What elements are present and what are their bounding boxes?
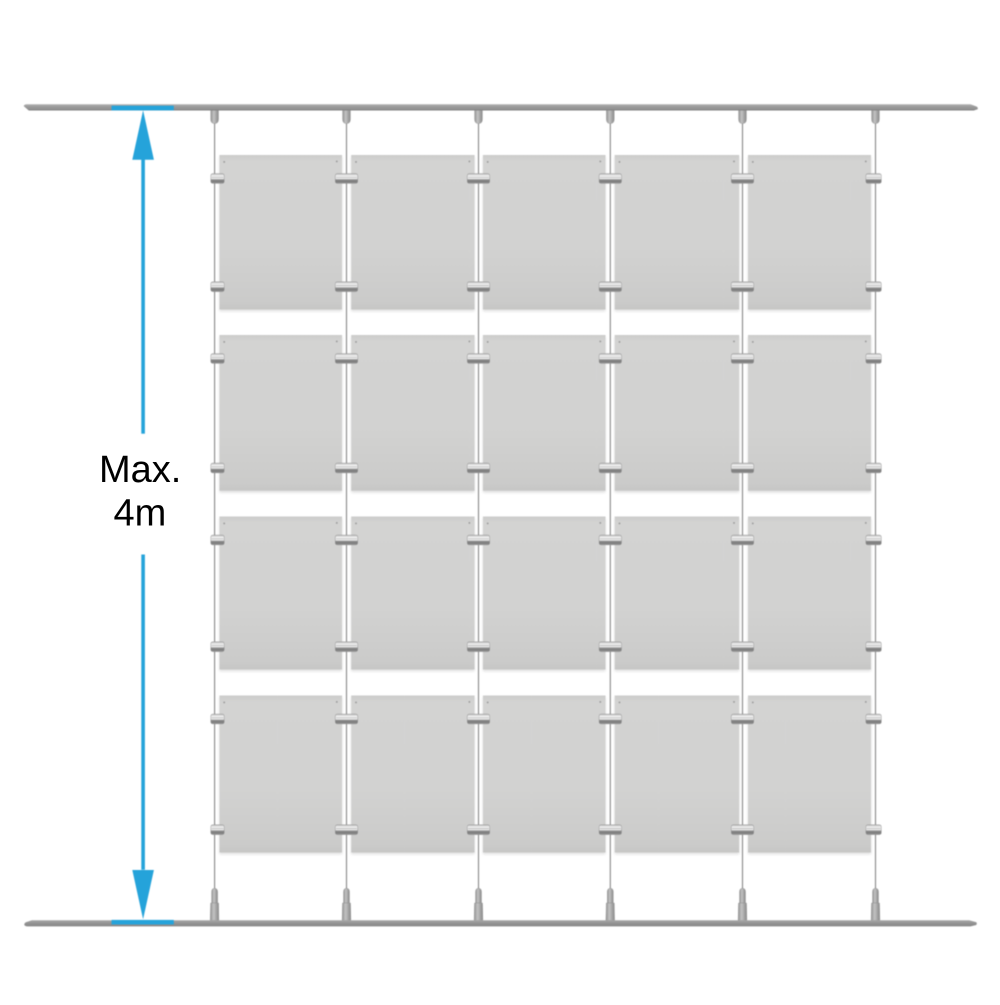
svg-text:Max.: Max. <box>99 449 181 491</box>
svg-text:4m: 4m <box>114 492 167 534</box>
